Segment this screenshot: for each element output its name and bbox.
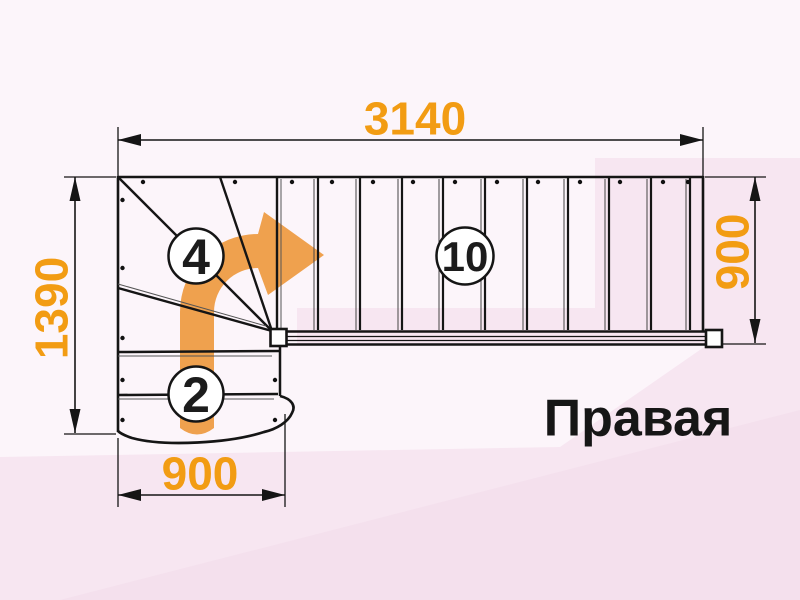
end-post xyxy=(706,330,722,347)
stair-plan-page: 3140 1390 900 900 4 10 2 Правая xyxy=(0,0,800,600)
dimension-bottom-value: 900 xyxy=(162,448,239,500)
background xyxy=(0,0,800,600)
upper-flight-count-value: 10 xyxy=(442,233,489,280)
background-facet-center xyxy=(297,308,595,345)
dimension-top-value: 3140 xyxy=(364,93,466,145)
winder-count-value: 4 xyxy=(182,229,210,285)
background-facet-top-right xyxy=(595,158,800,345)
newel-post xyxy=(271,329,287,346)
lower-flight-count-value: 2 xyxy=(182,367,210,423)
lower-step-line-1 xyxy=(118,351,280,352)
dimension-left-value: 1390 xyxy=(26,257,78,359)
page-title: Правая xyxy=(544,390,733,448)
stair-plan-diagram: 3140 1390 900 900 4 10 2 Правая xyxy=(0,0,800,600)
dimension-right-value: 900 xyxy=(707,214,759,291)
